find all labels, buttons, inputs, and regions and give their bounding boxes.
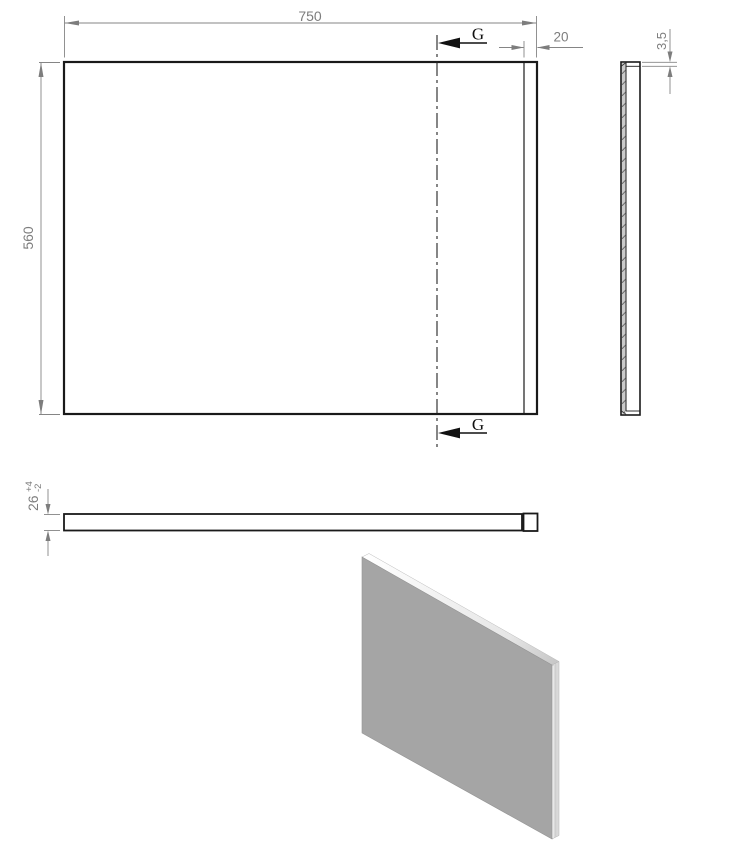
section-label-bottom: G	[472, 415, 484, 434]
dim-edge-label: 20	[553, 30, 568, 45]
dim-26-arrow-bottom	[46, 531, 51, 542]
section-arrowhead-bottom	[438, 428, 460, 439]
section-label-top: G	[472, 25, 484, 44]
dim-560-arrow-top	[39, 63, 44, 78]
dim-height-560	[39, 63, 60, 415]
dim-35-arrow-bottom	[668, 66, 673, 77]
dim-26-arrow-top	[46, 504, 51, 515]
dim-height-label: 560	[20, 226, 36, 250]
dim-560-arrow-bottom	[39, 400, 44, 415]
dim-thickness-label: 26	[25, 495, 41, 511]
dim-750-arrow-left	[65, 21, 80, 26]
dim-layer-label: 3,5	[654, 32, 669, 50]
dim-tolerance-minus: -2	[33, 484, 44, 492]
dim-35-arrow-top	[668, 52, 673, 63]
dim-thickness-label-group: 26 +4 -2	[24, 481, 44, 511]
side-facing-layer	[622, 63, 626, 414]
front-view: G G 750 560	[20, 8, 583, 447]
section-arrow-top: G	[438, 25, 487, 49]
dim-thickness-26	[44, 489, 60, 556]
plan-outline	[64, 514, 522, 531]
dim-750-arrow-right	[522, 21, 537, 26]
plan-edge-square	[524, 514, 538, 532]
drawing-canvas: G G 750 560	[0, 0, 755, 854]
section-arrowhead-top	[438, 38, 460, 49]
side-view: 3,5	[621, 29, 677, 415]
plan-view: 26 +4 -2	[24, 481, 538, 556]
dim-20-arrow-right	[537, 45, 550, 50]
section-arrow-bottom: G	[438, 415, 487, 438]
dim-20-arrow-left	[512, 45, 525, 50]
technical-drawing: G G 750 560	[0, 0, 755, 854]
iso-front-face	[362, 557, 552, 839]
iso-view	[362, 554, 559, 840]
panel-outline	[64, 62, 537, 414]
dim-width-label: 750	[298, 8, 322, 24]
